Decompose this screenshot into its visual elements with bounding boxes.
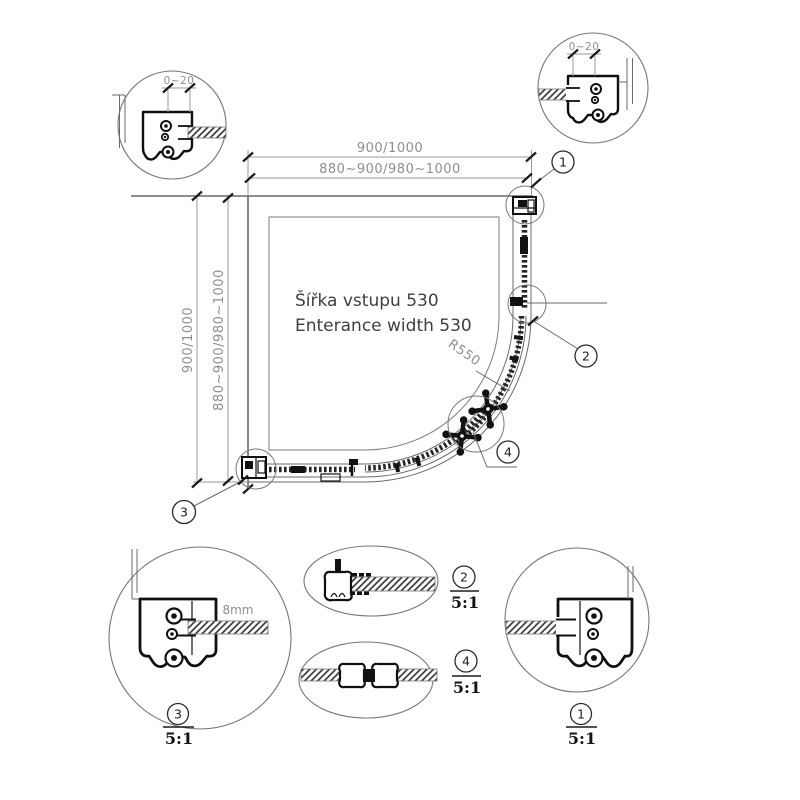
detail-bubble-mid-upper: 2 5:1 [304,546,479,616]
svg-text:3: 3 [180,505,188,520]
radius-label: R550 [445,337,483,370]
wall-profile-top-right [513,197,536,214]
shower-enclosure-technical-drawing: 900/1000 880~900/980~1000 900/1000 880~9… [0,0,800,800]
glass-section [506,621,558,634]
svg-text:5:1: 5:1 [165,729,193,748]
svg-text:2: 2 [460,570,468,585]
wall-section [628,566,633,599]
svg-text:0~20: 0~20 [164,75,195,87]
glass-thickness-label: 8mm [222,603,253,617]
entrance-width-label-en: Enterance width 530 [295,316,472,336]
glass-section-right [397,669,437,681]
bottom-roller-block [291,466,305,473]
wall-profile-bottom-left [242,457,266,478]
plan-view: 900/1000 880~900/980~1000 900/1000 880~9… [131,141,607,524]
callout-2: 2 [528,317,597,368]
detail-bubble-bottom-left: 8mm 3 5:1 [109,547,291,748]
dim-left-inner: 880~900/980~1000 [212,269,227,411]
svg-text:1: 1 [577,707,585,722]
callout-3: 3 [173,476,249,524]
detail-bubble-mid-lower: 4 5:1 [299,642,481,718]
radius-leader [476,371,510,391]
svg-text:0~20: 0~20 [569,41,600,53]
glass-section [349,577,435,591]
bottom-door-stop [349,459,358,465]
detail-bubble-top-left: 0~20 [112,71,226,179]
magnet-strip [363,669,375,682]
door-stop-bracket [510,297,523,306]
bottom-fixed-panel [242,457,365,482]
svg-text:2: 2 [582,349,590,364]
magnet-seal-left [339,664,365,687]
detail-label-3: 3 5:1 [163,704,194,749]
wall-section [618,58,633,110]
svg-text:4: 4 [462,654,470,669]
detail-label-4: 4 5:1 [452,650,481,697]
right-fixed-panel [510,196,607,316]
dim-left-outer: 900/1000 [181,307,196,373]
adjustment-dimension: 0~20 [162,75,196,112]
adjustment-dimension: 0~20 [567,41,601,76]
drawing-page: 900/1000 880~900/980~1000 900/1000 880~9… [0,0,800,800]
glass-section [188,621,268,634]
svg-text:1: 1 [559,155,567,170]
glass-section-left [301,669,341,681]
svg-text:5:1: 5:1 [451,593,479,612]
dim-top-outer: 900/1000 [357,141,423,156]
svg-text:5:1: 5:1 [568,729,596,748]
end-seal-profile [325,572,352,600]
magnet-seal-right [372,664,398,687]
entrance-width-label-cz: Šířka vstupu 530 [295,289,439,311]
dim-top-inner: 880~900/980~1000 [319,162,461,177]
right-panel-magnet-strip [520,237,528,254]
detail-label-2: 2 5:1 [450,566,479,612]
glass-section [539,89,569,100]
detail-label-1: 1 5:1 [566,704,597,749]
door-roller [514,335,523,340]
glass-section [188,127,226,138]
callout-1: 1 [531,151,574,188]
svg-text:4: 4 [504,445,512,460]
detail-bubble-top-right: 0~20 [538,33,648,143]
svg-text:3: 3 [174,707,182,722]
svg-text:5:1: 5:1 [453,678,481,697]
detail-bubble-bottom-right: 1 5:1 [505,548,649,748]
